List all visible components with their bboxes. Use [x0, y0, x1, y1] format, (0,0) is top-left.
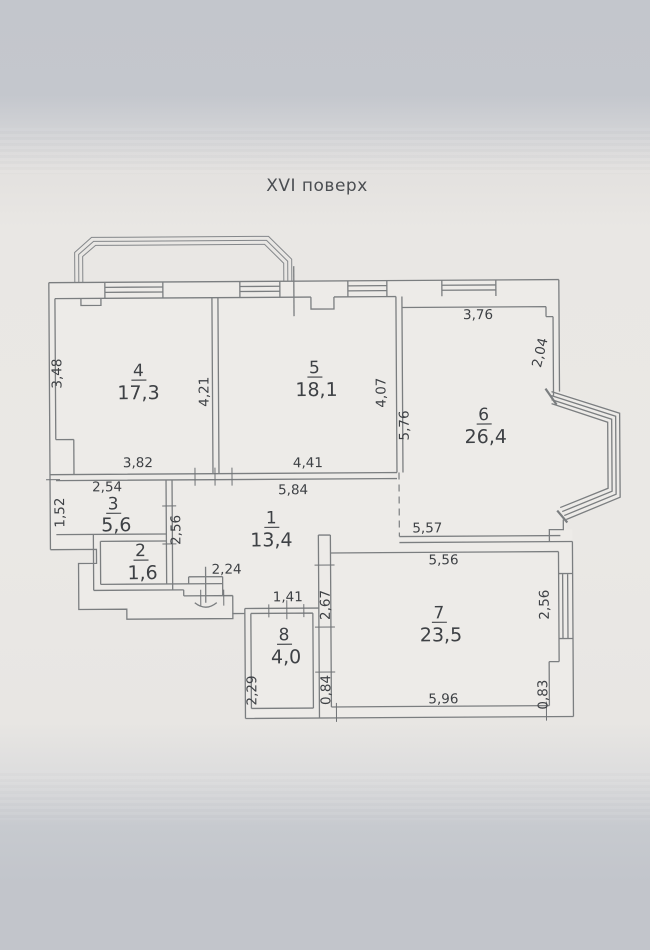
dim-room7-bottom-left: 0,84 [318, 675, 334, 705]
dim-room8-left: 2,29 [244, 675, 260, 705]
dim-room3-right: 2,56 [168, 515, 184, 545]
room-4-area: 17,3 [117, 382, 159, 404]
dim-room4-left: 3,48 [49, 359, 65, 389]
room-5-number: 5 [309, 358, 320, 378]
dim-room7-top: 5,56 [428, 552, 458, 568]
room-1-area: 13,4 [250, 529, 292, 551]
room-8-area: 4,0 [271, 646, 301, 668]
room-7-number: 7 [433, 603, 444, 623]
room-7-area: 23,5 [420, 624, 462, 646]
dim-room8-top: 1,41 [273, 589, 303, 605]
dim-room7-left: 2,67 [318, 590, 334, 620]
dim-room7-bottom: 5,96 [428, 691, 458, 707]
balcony-line-outer [75, 236, 292, 282]
balcony-line-inner [83, 244, 284, 282]
room-1-number: 1 [266, 508, 277, 528]
dim-room3-left: 1,52 [52, 498, 68, 528]
scanned-floor-plan-page: XVI поверх [0, 0, 650, 950]
room-5-area: 18,1 [295, 379, 337, 401]
dim-room5-right: 4,07 [373, 378, 389, 408]
room-4-number: 4 [133, 361, 144, 381]
room-6-number: 6 [478, 405, 489, 425]
room-2-number: 2 [135, 541, 146, 561]
room-2-area: 1,6 [127, 562, 157, 584]
dim-room5-bottom: 4,41 [293, 455, 323, 471]
room-6-area: 26,4 [465, 426, 507, 448]
balcony-line-mid [79, 240, 288, 282]
dim-room4-right: 4,21 [196, 377, 212, 407]
balcony-outline [75, 236, 292, 282]
room-3-number: 3 [108, 494, 119, 514]
floor-plan-drawing: 1 13,4 2 1,6 3 5,6 4 17,3 5 18,1 6 26,4 … [0, 0, 650, 950]
room-3-area: 5,6 [101, 514, 131, 536]
dim-room6-left: 5,76 [397, 410, 413, 440]
dim-room4-bottom: 3,82 [123, 455, 153, 471]
dim-room3-top: 2,54 [92, 479, 122, 495]
dim-room7-bottom-right: 0,83 [535, 680, 551, 710]
dim-room1-bottom: 2,24 [211, 562, 241, 578]
dim-room6-top: 3,76 [463, 307, 493, 323]
dim-room6-bottom: 5,57 [412, 520, 442, 536]
dim-room1-top: 5,84 [278, 482, 308, 498]
dim-room7-right: 2,56 [537, 590, 553, 620]
room-8-number: 8 [279, 625, 290, 645]
